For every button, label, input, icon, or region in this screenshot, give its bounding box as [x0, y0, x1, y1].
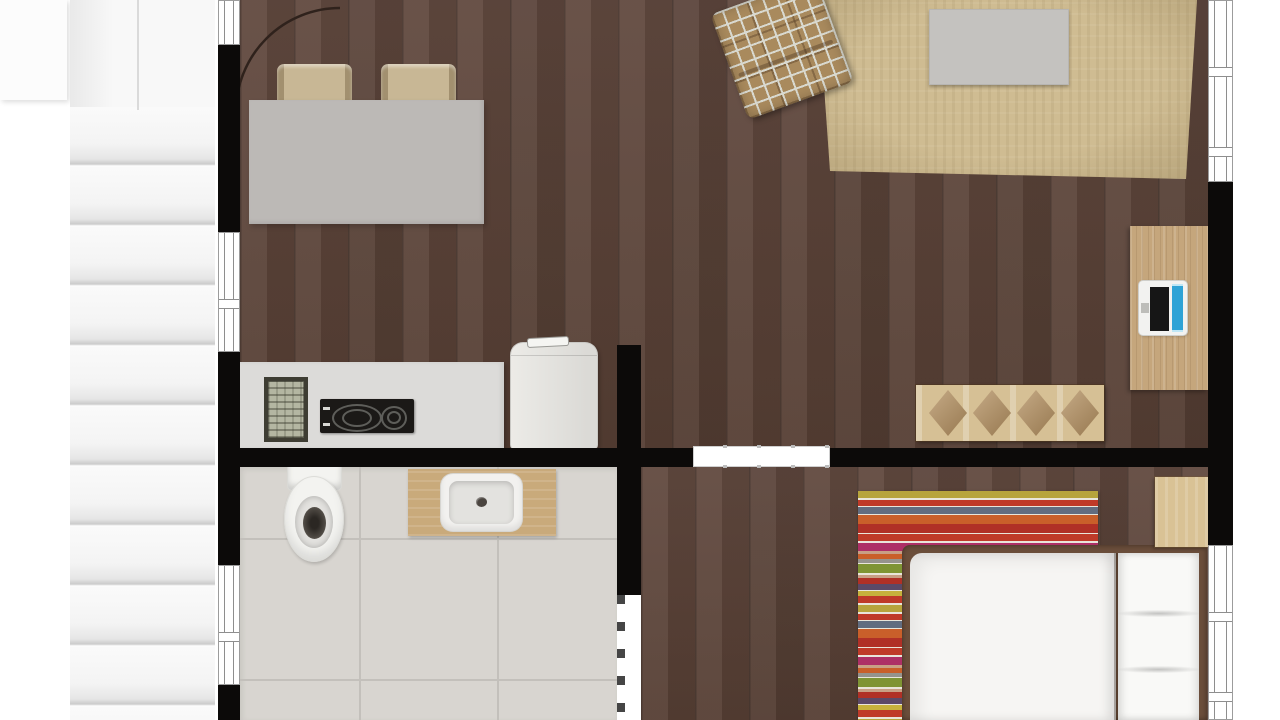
window-bathroom	[218, 565, 240, 685]
stair-upper-landing	[0, 0, 67, 100]
stair-steps	[70, 107, 215, 720]
wall-bathroom-vertical	[617, 345, 641, 595]
pillow-crease	[1118, 666, 1199, 673]
toilet-bowl-interior	[303, 507, 326, 539]
window-bedroom	[1208, 545, 1233, 720]
sliding-door	[693, 446, 830, 467]
window-left-middle	[218, 232, 240, 352]
refrigerator	[511, 343, 597, 449]
bed-duvet	[910, 553, 1116, 720]
window-right-top	[1208, 0, 1233, 182]
stair-edge-line	[137, 0, 139, 110]
sink-drain	[476, 497, 487, 507]
staircase	[70, 0, 215, 720]
window-left-top	[218, 0, 240, 45]
wall-right	[1208, 182, 1233, 545]
wall-left-lower	[218, 685, 240, 720]
laptop-touchpad	[1141, 303, 1149, 313]
diamond-sideboard	[916, 385, 1104, 441]
floor-plan	[0, 0, 1280, 720]
dish-rack	[264, 377, 308, 442]
laptop-screen	[1150, 287, 1169, 331]
tile-grout-line	[240, 679, 617, 681]
tile-grout-line	[359, 467, 361, 720]
wall-left-upper	[218, 45, 240, 232]
dining-table	[249, 100, 484, 224]
laptop-lid	[1172, 284, 1183, 332]
stair-landing	[70, 0, 215, 107]
nightstand	[1155, 477, 1208, 547]
cooktop	[320, 399, 414, 433]
coffee-table	[929, 9, 1069, 85]
pillow-crease	[1118, 610, 1199, 617]
bed-pillows	[1118, 553, 1199, 720]
bathroom-door-opening	[617, 595, 641, 720]
